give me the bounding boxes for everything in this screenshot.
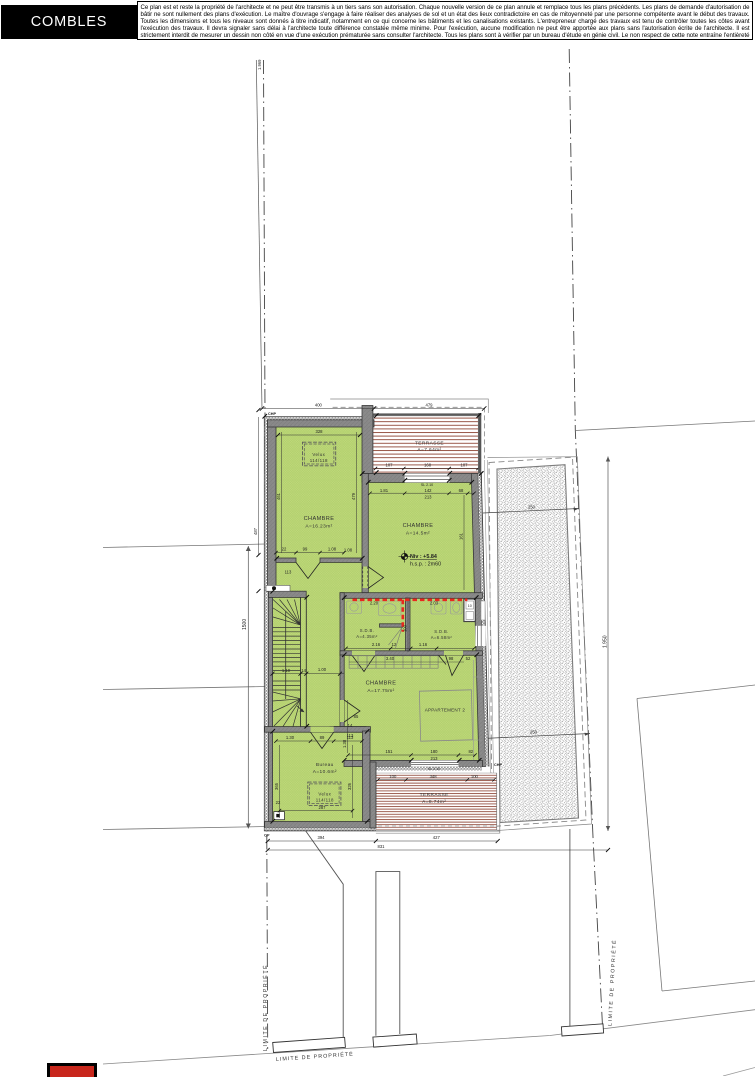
svg-text:213: 213	[431, 756, 439, 761]
svg-text:479: 479	[351, 492, 356, 500]
svg-text:Velux: Velux	[312, 452, 325, 457]
svg-text:CHAMBRE: CHAMBRE	[366, 681, 397, 687]
svg-text:1.16: 1.16	[419, 642, 428, 647]
svg-text:114/118: 114/118	[316, 798, 334, 803]
svg-text:394: 394	[318, 835, 326, 840]
svg-text:A=6.58m²: A=6.58m²	[431, 635, 453, 640]
svg-text:213: 213	[425, 495, 433, 500]
svg-text:180: 180	[431, 749, 439, 754]
svg-text:S.D.B.: S.D.B.	[434, 629, 449, 634]
svg-text:12: 12	[392, 642, 397, 647]
svg-text:100: 100	[389, 774, 397, 779]
svg-text:CHAMBRE: CHAMBRE	[304, 516, 335, 522]
svg-text:TERRASSE: TERRASSE	[415, 441, 444, 447]
svg-text:A=10.6m²: A=10.6m²	[313, 769, 337, 775]
svg-text:98: 98	[449, 656, 454, 661]
svg-text:326: 326	[347, 782, 352, 790]
svg-text:1.81: 1.81	[380, 488, 389, 493]
svg-text:100: 100	[403, 624, 408, 632]
svg-text:APPARTEMENT 2: APPARTEMENT 2	[425, 708, 466, 713]
svg-text:1.950: 1.950	[603, 635, 609, 648]
svg-text:250: 250	[530, 730, 538, 735]
svg-text:250: 250	[528, 505, 536, 510]
svg-text:14: 14	[348, 723, 353, 728]
svg-text:85: 85	[354, 714, 359, 719]
svg-text:831: 831	[378, 844, 386, 849]
svg-text:A=8.74m²: A=8.74m²	[422, 799, 446, 805]
svg-text:A=4.35m²: A=4.35m²	[356, 634, 378, 639]
svg-text:52: 52	[466, 656, 471, 661]
svg-text:168: 168	[424, 463, 432, 468]
svg-text:A=17.75m²: A=17.75m²	[367, 688, 394, 694]
svg-text:3.40: 3.40	[386, 656, 395, 661]
svg-text:2.20: 2.20	[370, 601, 379, 606]
svg-text:107: 107	[461, 463, 469, 468]
svg-text:113: 113	[347, 735, 354, 740]
svg-text:OP: OP	[264, 834, 270, 838]
svg-text:CHP: CHP	[268, 412, 276, 416]
svg-text:h.s.p. : 2m60: h.s.p. : 2m60	[410, 562, 441, 568]
svg-text:348: 348	[430, 774, 438, 779]
svg-text:100: 100	[471, 774, 479, 779]
svg-text:CHAMBRE: CHAMBRE	[403, 523, 434, 529]
svg-text:142: 142	[425, 488, 433, 493]
svg-text:10: 10	[468, 604, 472, 608]
svg-text:151: 151	[386, 749, 394, 754]
svg-text:427: 427	[433, 835, 441, 840]
svg-text:22: 22	[282, 547, 287, 552]
svg-text:1.30: 1.30	[286, 735, 295, 740]
svg-text:Velux: Velux	[318, 792, 331, 797]
svg-text:113: 113	[285, 570, 292, 575]
svg-text:114/118: 114/118	[310, 458, 328, 463]
svg-text:Bureau: Bureau	[316, 762, 334, 768]
svg-text:1500: 1500	[242, 619, 248, 630]
svg-text:89: 89	[320, 735, 325, 740]
svg-text:A=16.23m²: A=16.23m²	[305, 524, 332, 530]
svg-text:1.10: 1.10	[282, 668, 291, 673]
svg-text:TERRASSE: TERRASSE	[420, 792, 449, 798]
svg-text:SL 2.10: SL 2.10	[428, 767, 440, 771]
svg-text:S.D.B.: S.D.B.	[360, 628, 375, 633]
svg-text:14: 14	[301, 668, 306, 673]
svg-text:1.38: 1.38	[342, 739, 347, 748]
svg-text:1.08: 1.08	[328, 547, 337, 552]
svg-text:287: 287	[319, 805, 327, 810]
svg-text:161: 161	[459, 532, 464, 540]
svg-text:CHP: CHP	[494, 763, 502, 767]
svg-text:400: 400	[315, 402, 323, 407]
svg-text:99: 99	[303, 547, 308, 552]
svg-text:A=7.64m²: A=7.64m²	[417, 447, 441, 453]
svg-text:1.969: 1.969	[257, 59, 262, 70]
svg-text:107: 107	[386, 463, 394, 468]
svg-text:487: 487	[253, 527, 258, 535]
svg-text:Niv : +5.84: Niv : +5.84	[410, 554, 437, 560]
svg-text:479: 479	[426, 402, 434, 407]
svg-text:68: 68	[459, 488, 464, 493]
svg-text:SL 2.10: SL 2.10	[421, 483, 433, 487]
svg-text:1.00: 1.00	[318, 667, 327, 672]
svg-text:461: 461	[276, 492, 281, 500]
svg-text:22: 22	[276, 800, 281, 805]
svg-text:328: 328	[316, 429, 324, 434]
svg-text:A=14.5m²: A=14.5m²	[406, 531, 430, 537]
svg-text:2.16: 2.16	[372, 642, 381, 647]
svg-text:82: 82	[468, 749, 473, 754]
svg-text:2.03: 2.03	[430, 601, 439, 606]
svg-text:LIMITE DE PROPRIÉTÉ: LIMITE DE PROPRIÉTÉ	[262, 964, 269, 1051]
svg-text:365: 365	[274, 782, 279, 790]
